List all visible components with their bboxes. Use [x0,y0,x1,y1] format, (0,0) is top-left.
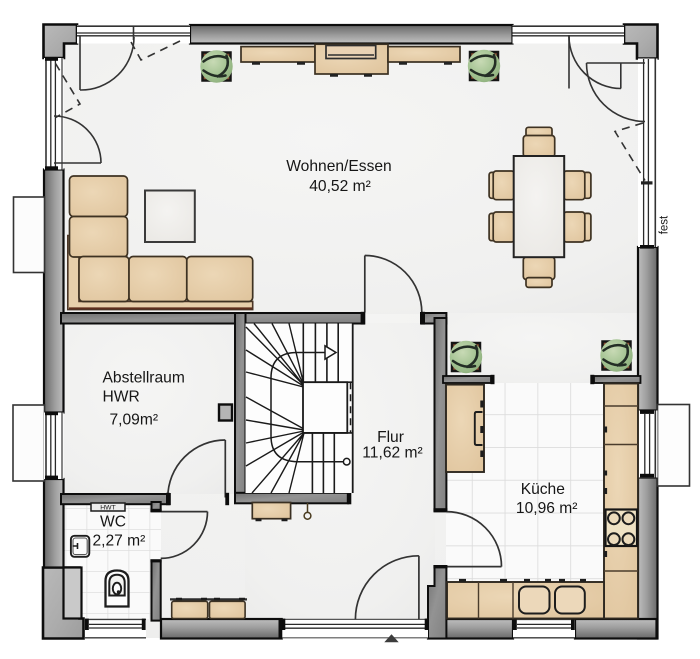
svg-text:7,09m²: 7,09m² [110,412,159,429]
svg-text:Küche: Küche [521,481,565,498]
svg-text:HWT: HWT [100,505,115,512]
svg-text:40,52 m²: 40,52 m² [309,178,371,195]
svg-text:10,96 m²: 10,96 m² [516,500,578,517]
svg-text:WC: WC [100,514,126,531]
svg-text:11,62 m²: 11,62 m² [362,445,422,462]
svg-text:Abstellraum: Abstellraum [103,369,185,386]
svg-text:fest: fest [659,215,671,234]
svg-text:2,27 m²: 2,27 m² [93,533,146,550]
svg-text:HWR: HWR [103,389,140,406]
svg-text:Wohnen/Essen: Wohnen/Essen [286,158,391,175]
